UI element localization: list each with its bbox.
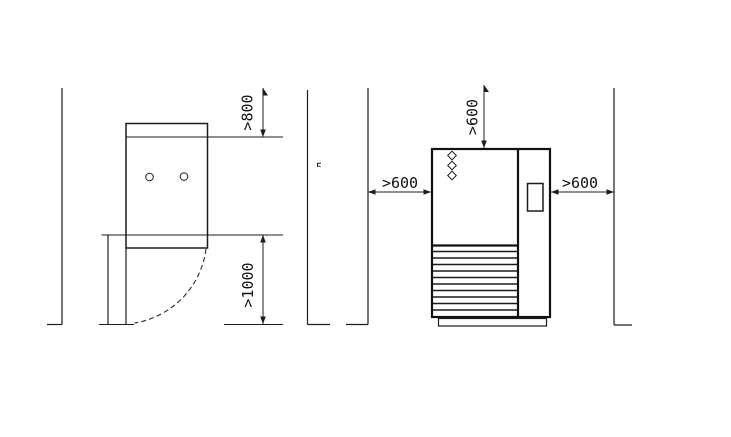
indicator-diamonds bbox=[448, 151, 457, 180]
dim-top-600-label: >600 bbox=[464, 99, 482, 135]
plan-knob-left-circle bbox=[146, 173, 154, 181]
indicator-diamond-1 bbox=[448, 151, 457, 160]
dim-800-label: >800 bbox=[239, 94, 257, 130]
dim-1000-top-arrow bbox=[260, 235, 266, 243]
front-view: >600 >600 >600 bbox=[346, 85, 632, 326]
dim-right-600-right-arrow bbox=[607, 189, 615, 195]
dimension-top-clearance: >600 bbox=[464, 85, 490, 148]
dim-1000-bottom-arrow bbox=[260, 317, 266, 325]
dim-top-600-top-tick bbox=[484, 85, 489, 92]
dim-800-bottom-arrow bbox=[260, 130, 266, 138]
front-display-panel bbox=[528, 184, 544, 212]
dim-top-600-bottom-arrow bbox=[481, 141, 487, 149]
indicator-diamond-3 bbox=[448, 171, 457, 180]
plan-cabinet-outline bbox=[126, 124, 208, 249]
dim-left-600-left-arrow bbox=[368, 189, 376, 195]
dim-1000-label: >1000 bbox=[239, 262, 257, 307]
dimension-front-clearance: >1000 bbox=[239, 235, 266, 324]
clearance-drawing-svg: >800 >1000 bbox=[0, 0, 731, 437]
dimension-rear-clearance: >800 bbox=[239, 88, 269, 137]
stray-tick-mark bbox=[318, 163, 322, 167]
dim-left-600-right-arrow bbox=[424, 189, 432, 195]
plan-view: >800 >1000 bbox=[47, 88, 330, 325]
cabinet-base-pedestal bbox=[439, 319, 547, 327]
dimension-right-clearance: >600 bbox=[551, 174, 614, 195]
installation-clearance-diagram: >800 >1000 bbox=[0, 0, 731, 437]
dim-right-600-left-arrow bbox=[551, 189, 559, 195]
vent-louvers bbox=[433, 246, 517, 311]
door-swing-arc bbox=[135, 249, 207, 323]
plan-knob-right-circle bbox=[180, 173, 188, 181]
indicator-diamond-2 bbox=[448, 161, 457, 170]
dimension-left-clearance: >600 bbox=[368, 174, 431, 195]
dim-800-top-tick bbox=[263, 88, 268, 96]
dim-left-600-label: >600 bbox=[382, 174, 418, 192]
dim-right-600-label: >600 bbox=[562, 174, 598, 192]
